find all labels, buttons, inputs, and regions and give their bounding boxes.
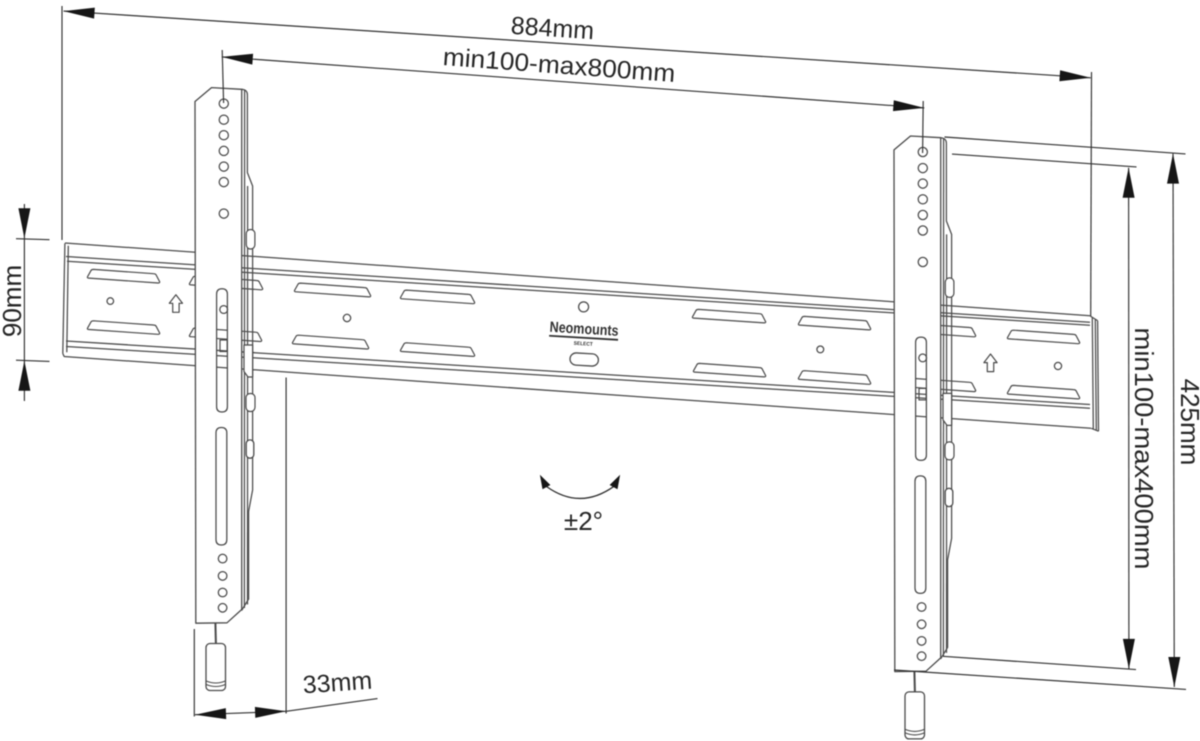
svg-text:min100-max400mm: min100-max400mm	[1129, 328, 1159, 570]
svg-text:SELECT: SELECT	[574, 341, 594, 348]
svg-text:90mm: 90mm	[0, 265, 27, 337]
svg-text:33mm: 33mm	[302, 667, 373, 700]
svg-text:±2°: ±2°	[564, 506, 603, 536]
svg-text:884mm: 884mm	[510, 12, 595, 45]
svg-text:425mm: 425mm	[1175, 379, 1200, 466]
